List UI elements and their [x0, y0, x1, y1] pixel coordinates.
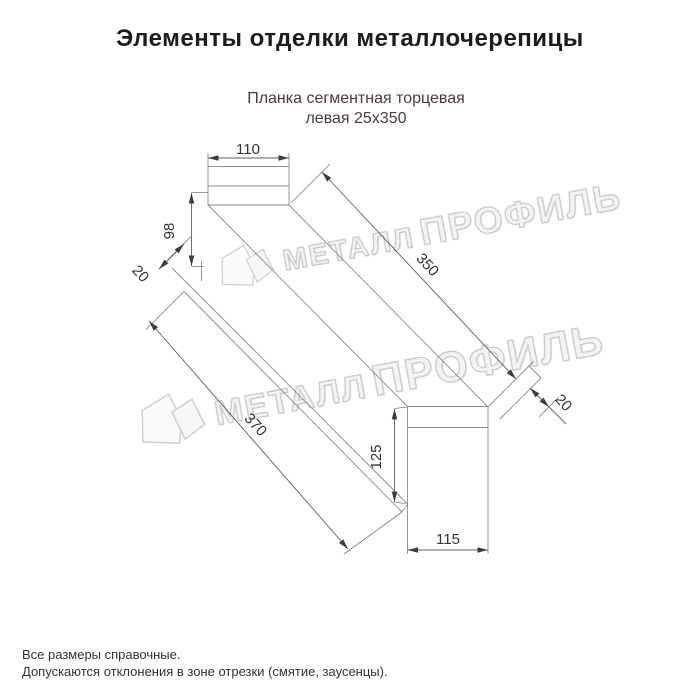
dim-label-face-height: 98	[161, 223, 178, 240]
dim-label-right-fold: 20	[551, 391, 575, 415]
dimension-labels: 110 98 20 350 370 20 125 115	[128, 141, 575, 548]
dim-label-front-height: 125	[368, 444, 385, 469]
footnotes: Все размеры справочные. Допускаются откл…	[22, 646, 682, 680]
dim-label-length-top: 350	[413, 250, 443, 280]
dim-label-length-bottom: 370	[241, 410, 271, 440]
footnote-line-1: Все размеры справочные.	[22, 646, 682, 663]
dim-label-top-width: 110	[236, 141, 260, 158]
dim-label-front-width: 115	[436, 531, 460, 548]
dim-label-left-fold: 20	[128, 262, 152, 286]
dimension-lines	[146, 153, 566, 554]
footnote-line-2: Допускаются отклонения в зоне отрезки (с…	[22, 663, 682, 680]
technical-drawing: 110 98 20 350 370 20 125 115	[0, 0, 700, 700]
plank-outline	[172, 167, 541, 555]
